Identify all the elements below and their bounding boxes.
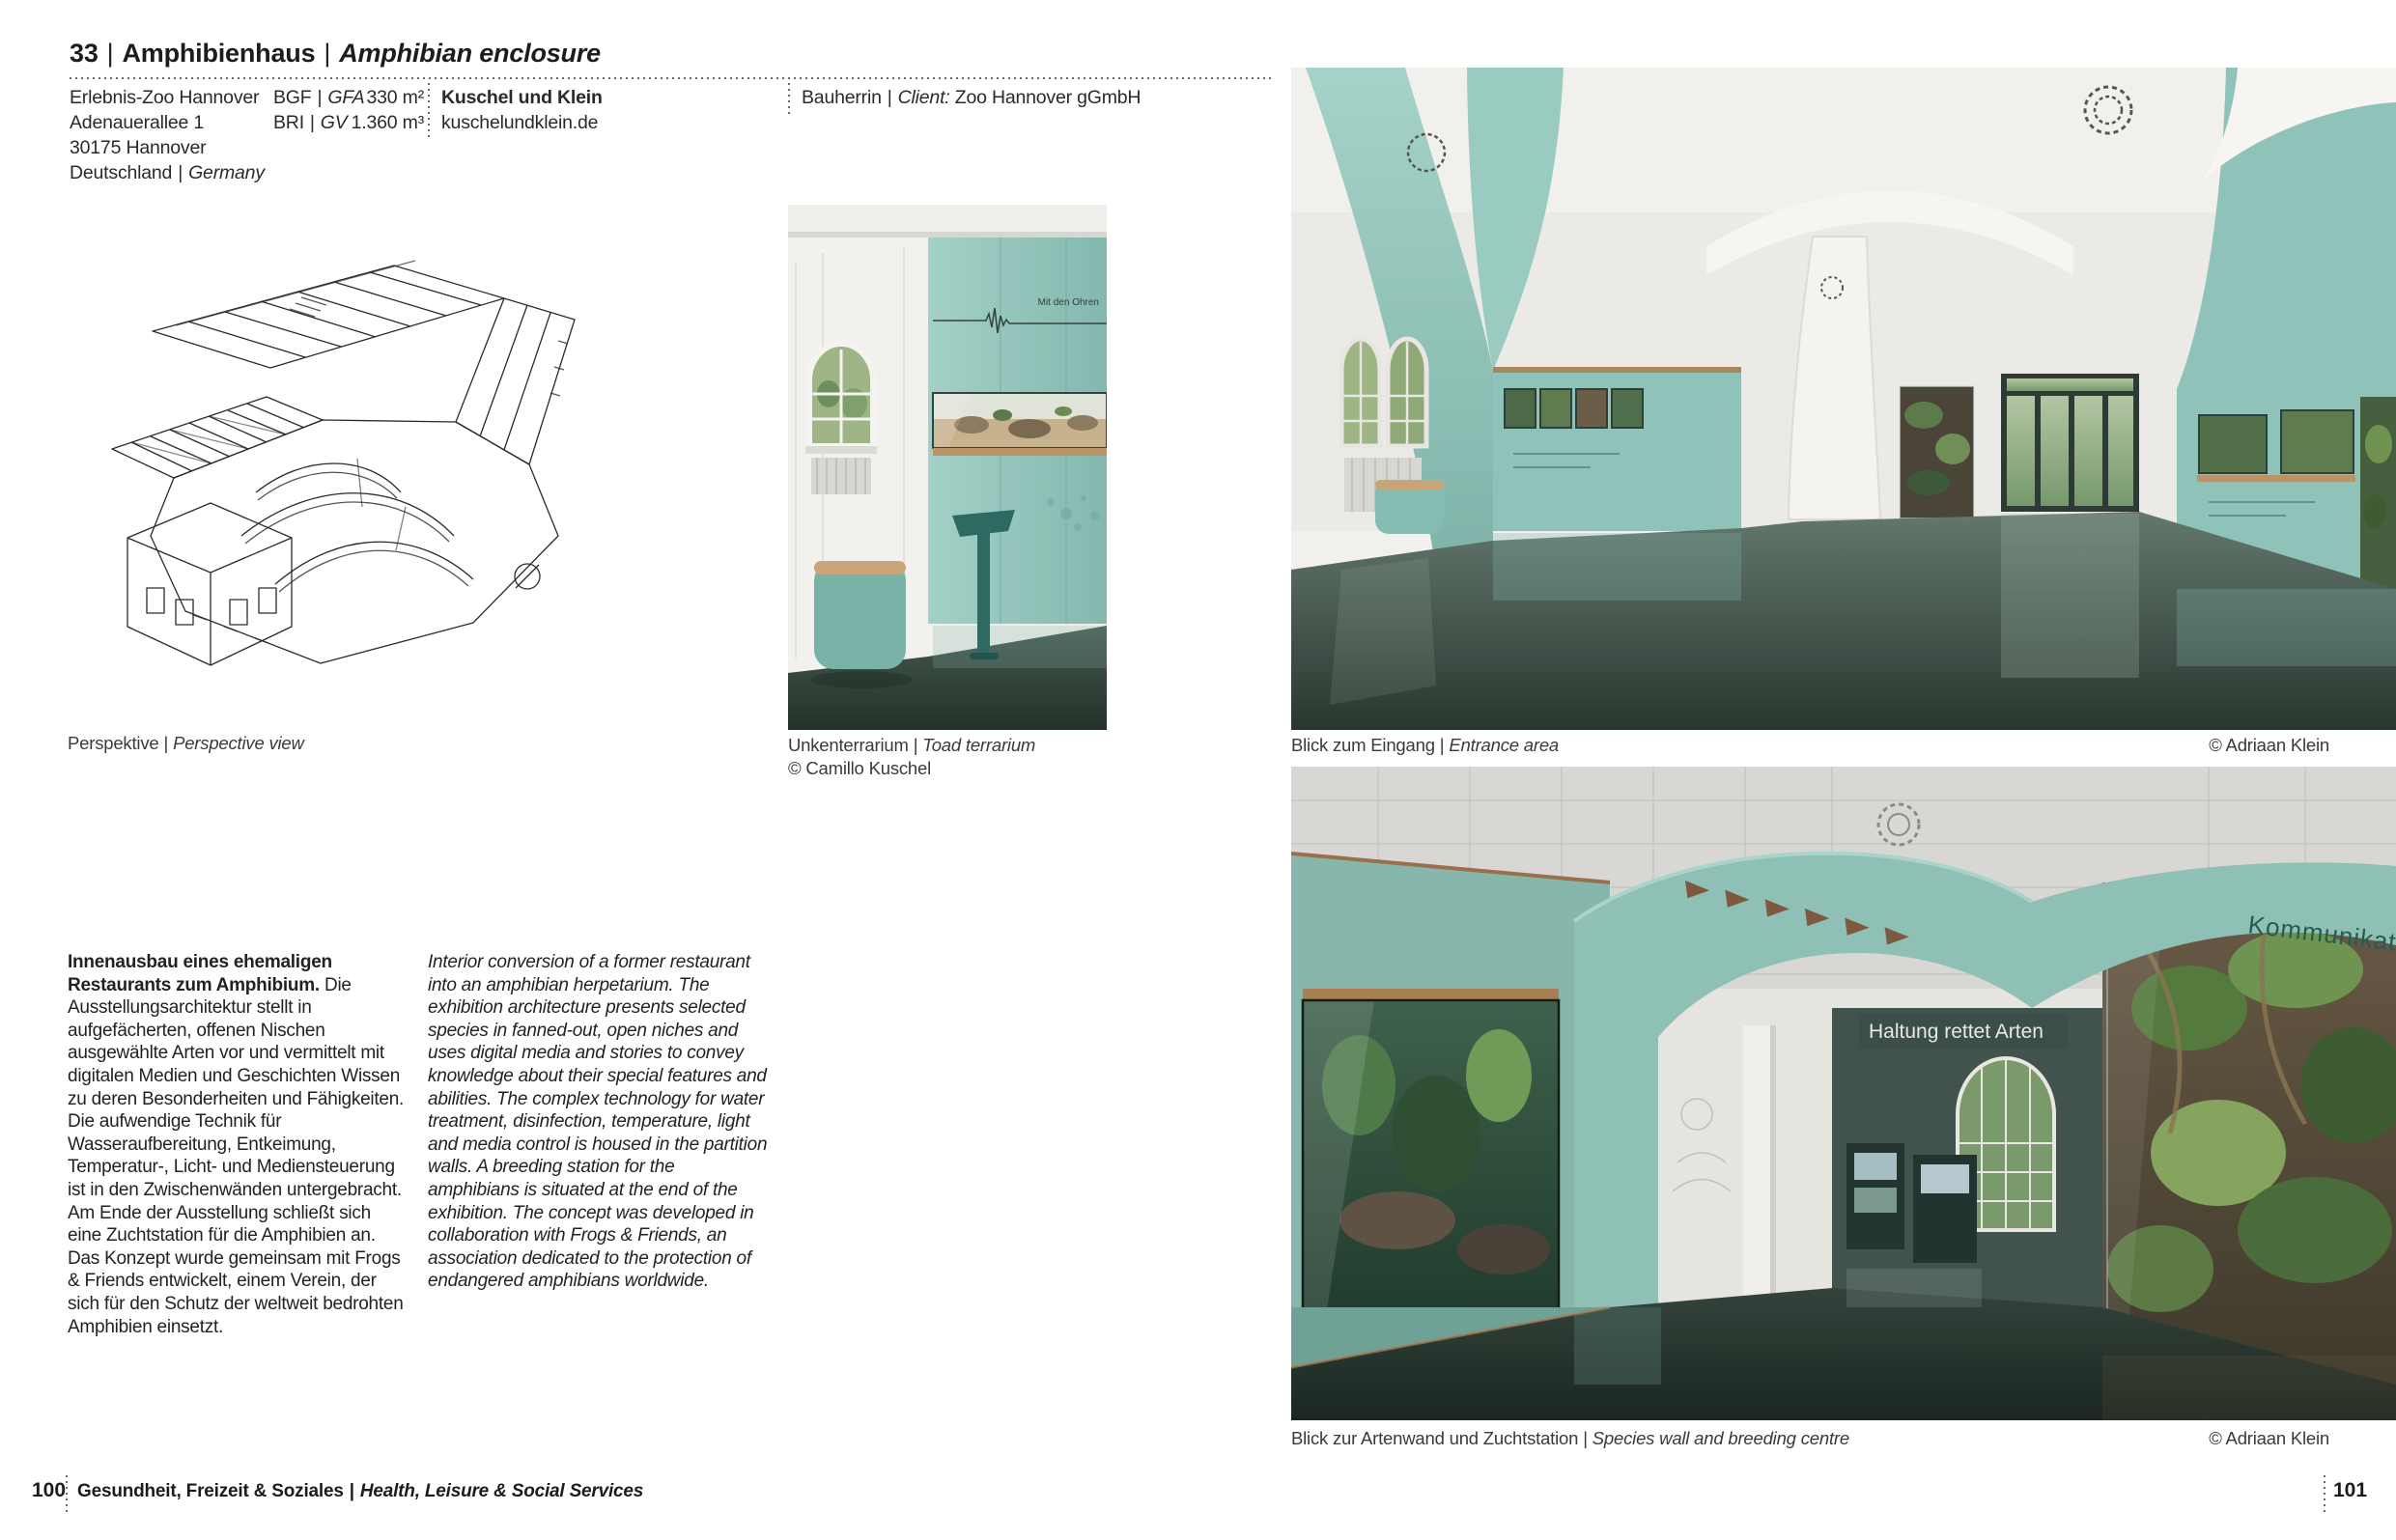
wall-text-haltung: Haltung rettet Arten — [1869, 1021, 2044, 1043]
footer-divider-left — [66, 1475, 68, 1516]
book-spread: 33|Amphibienhaus|Amphibian enclosure Erl… — [0, 0, 2396, 1540]
info-divider-1 — [428, 83, 430, 139]
page-title: 33|Amphibienhaus|Amphibian enclosure — [70, 39, 601, 69]
body-text-english: Interior conversion of a former restaura… — [428, 951, 768, 1293]
address-org: Erlebnis-Zoo Hannover — [70, 85, 265, 110]
metric-gfa-value: 330 m² — [367, 85, 425, 110]
caption-entrance: Blick zum Eingang|Entrance area — [1291, 734, 1559, 757]
credit-entrance: © Adriaan Klein — [2125, 734, 2329, 757]
metric-gfa: BGF|GFA 330 m² — [273, 85, 424, 110]
photo-toad-terrarium: Mit den Ohren — [788, 205, 1107, 730]
caption-terrarium: Unkenterrarium|Toad terrarium © Camillo … — [788, 734, 1035, 780]
address-street: Adenauerallee 1 — [70, 110, 265, 135]
address-city: 30175 Hannover — [70, 135, 265, 160]
footer-divider-right — [2324, 1475, 2326, 1516]
footer-section-title: Gesundheit, Freizeit & Soziales|Health, … — [77, 1481, 643, 1502]
client-block: Bauherrin|Client: Zoo Hannover gGmbH — [802, 85, 1141, 110]
project-title-en: Amphibian enclosure — [339, 39, 601, 68]
caption-perspective: Perspektive|Perspective view — [68, 732, 304, 755]
page-number-left: 100 — [32, 1479, 66, 1502]
metric-gv-value: 1.360 m³ — [352, 110, 424, 135]
photo-species-wall: Haltung rettet Arten Kommunikation — [1291, 767, 2396, 1420]
project-number: 33 — [70, 39, 99, 68]
client-name: Zoo Hannover gGmbH — [955, 87, 1142, 108]
caption-species-wall: Blick zur Artenwand und Zuchtstation|Spe… — [1291, 1427, 1849, 1450]
metrics-block: BGF|GFA 330 m² BRI|GV 1.360 m³ — [273, 85, 424, 135]
project-title-de: Amphibienhaus — [122, 39, 315, 68]
address-block: Erlebnis-Zoo Hannover Adenauerallee 1 30… — [70, 85, 265, 185]
photo-entrance-area — [1291, 68, 2396, 730]
body-text-german: Innenausbau eines ehemaligen Restaurants… — [68, 951, 408, 1338]
body-rest-de: Die Ausstellungsarchitektur stellt in au… — [68, 975, 404, 1337]
perspective-drawing — [68, 217, 671, 719]
wall-text-ohren: Mit den Ohren — [1038, 297, 1099, 308]
body-lead-de: Innenausbau eines ehemaligen Restaurants… — [68, 952, 332, 995]
architect-block: Kuschel und Klein kuschelundklein.de — [441, 85, 603, 135]
metric-gv: BRI|GV 1.360 m³ — [273, 110, 424, 135]
credit-terrarium: © Camillo Kuschel — [788, 757, 1035, 780]
page-number-right: 101 — [2333, 1479, 2367, 1502]
header-rule — [70, 77, 1275, 79]
architect-name: Kuschel und Klein — [441, 85, 603, 110]
address-country: Deutschland|Germany — [70, 160, 265, 185]
architect-website: kuschelundklein.de — [441, 110, 603, 135]
credit-species-wall: © Adriaan Klein — [2125, 1427, 2329, 1450]
info-divider-2 — [788, 83, 790, 114]
